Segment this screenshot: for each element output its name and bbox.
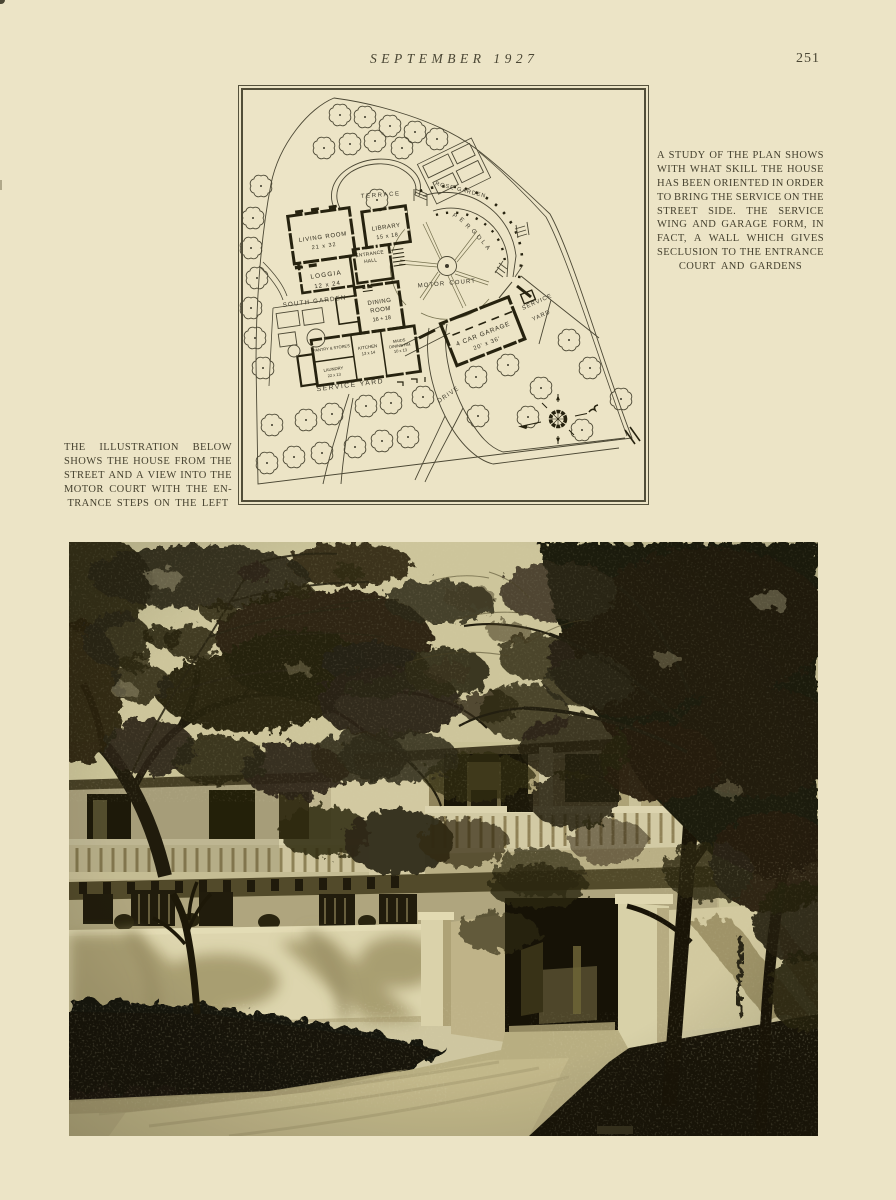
svg-text:10 x 13: 10 x 13 xyxy=(394,347,408,354)
svg-text:R: R xyxy=(464,223,472,231)
svg-text:G: G xyxy=(470,228,478,236)
svg-text:L: L xyxy=(479,239,486,246)
svg-text:HALL: HALL xyxy=(364,257,378,265)
svg-text:P: P xyxy=(451,213,458,220)
svg-text:15 x 18: 15 x 18 xyxy=(376,232,399,241)
svg-text:LIBRARY: LIBRARY xyxy=(371,223,401,233)
svg-text:16 + 18: 16 + 18 xyxy=(372,315,391,324)
svg-text:13 x 14: 13 x 14 xyxy=(361,349,376,356)
svg-text:ENTRANCE: ENTRANCE xyxy=(355,249,384,259)
svg-text:ROOM: ROOM xyxy=(370,306,391,315)
svg-text:LIVING ROOM: LIVING ROOM xyxy=(298,231,347,244)
svg-text:22 x 13: 22 x 13 xyxy=(327,371,341,378)
svg-text:PANTRY & STORES: PANTRY & STORES xyxy=(313,343,351,353)
svg-text:ROSE GARDEN: ROSE GARDEN xyxy=(435,181,487,199)
svg-text:E: E xyxy=(458,217,465,224)
svg-text:YARD: YARD xyxy=(531,309,551,322)
svg-text:21 x 32: 21 x 32 xyxy=(311,242,337,251)
svg-text:MOTOR COURT: MOTOR COURT xyxy=(417,278,476,289)
svg-text:LOGGIA: LOGGIA xyxy=(310,269,342,280)
svg-text:A: A xyxy=(483,245,490,252)
